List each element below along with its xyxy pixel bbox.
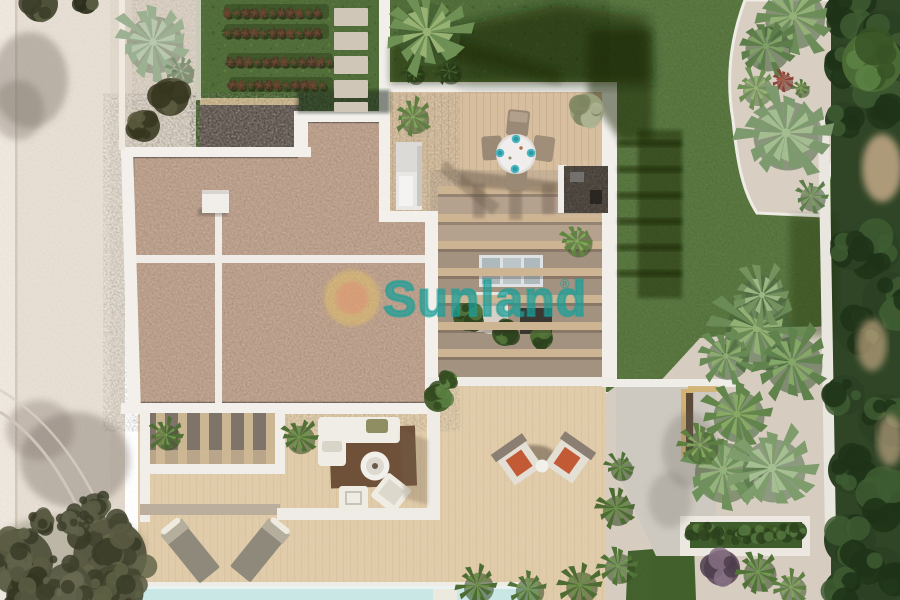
- svg-text:Sunland: Sunland: [383, 271, 587, 327]
- svg-text:®: ®: [560, 276, 570, 291]
